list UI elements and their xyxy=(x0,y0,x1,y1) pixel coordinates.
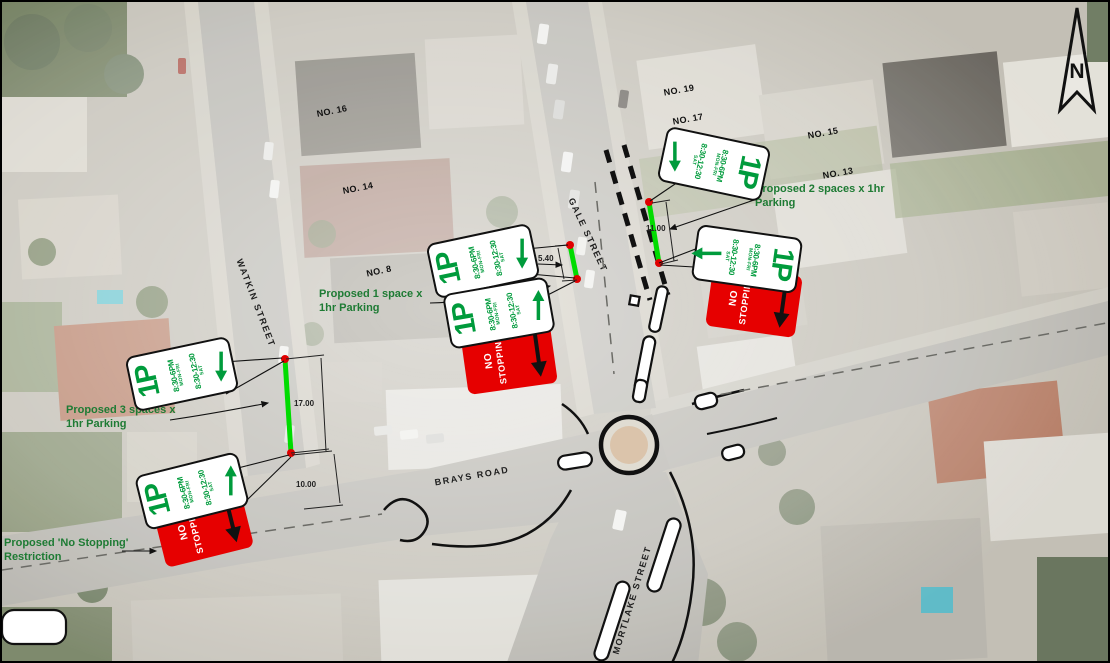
north-label: N xyxy=(1069,60,1084,83)
sign-1p-period1: 8:30-6PMMON-FRI xyxy=(467,245,487,280)
sign-1p-period1: 8:30-6PMMON-FRI xyxy=(710,148,730,183)
traffic-plan-map: 17.00 10.00 5.40 11.00 N WATKIN STREET G… xyxy=(0,0,1110,663)
sign-1p-title: 1P xyxy=(132,363,164,399)
sign-1p-period2: 8:30-12:30SAT xyxy=(488,238,509,276)
sign-1p-period2: 8:30-12:30SAT xyxy=(687,141,708,179)
dimension-label-11: 11.00 xyxy=(646,224,666,233)
sign-1p-period1: 8:30-6PMMON-FRI xyxy=(175,475,197,510)
sign-1p-title: 1P xyxy=(732,153,764,189)
sign-1p-title: 1P xyxy=(449,301,480,337)
sign-1p-period1: 8:30-6PMMON-FRI xyxy=(166,358,186,393)
sign-1p-title: 1P xyxy=(142,481,175,518)
dimension-label-540: 5.40 xyxy=(538,254,554,263)
green-arrow-icon xyxy=(689,245,725,261)
dimension-label-17: 17.00 xyxy=(294,399,315,408)
green-arrow-icon xyxy=(514,235,530,271)
sign-1p-title: 1P xyxy=(433,250,465,286)
sign-1p-period1: 8:30-6PMMON-FRI xyxy=(744,243,762,277)
sign-1p-period1: 8:30-6PMMON-FRI xyxy=(483,297,502,332)
roundabout xyxy=(601,417,657,473)
green-arrow-icon xyxy=(667,138,683,174)
green-arrow-icon xyxy=(530,288,546,324)
sign-1p-period2: 8:30-12:30SAT xyxy=(187,351,208,389)
sign-1p-period2: 8:30-12:30SAT xyxy=(197,468,219,506)
sign-1p-period2: 8:30-12:30SAT xyxy=(505,291,525,329)
green-arrow-icon xyxy=(213,348,229,384)
dimension-label-10: 10.00 xyxy=(296,480,317,489)
kerb-lines xyxy=(384,390,777,663)
sign-1p-title: 1P xyxy=(767,246,797,281)
north-arrow: N xyxy=(1060,8,1094,110)
green-arrow-icon xyxy=(223,463,239,499)
